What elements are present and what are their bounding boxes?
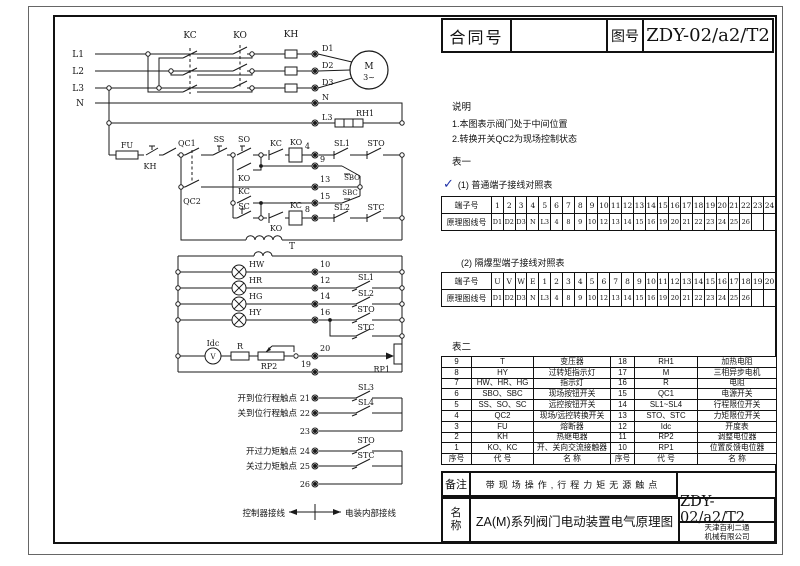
table-cell: T — [472, 357, 534, 368]
table-cell: 2 — [503, 197, 515, 214]
sto-contact-label: STO — [357, 436, 375, 445]
kc-contactor-label: KC — [183, 31, 196, 41]
table-cell: 10 — [645, 273, 657, 290]
table-cell: L3 — [539, 214, 551, 231]
terminal-16-label: 16 — [320, 308, 330, 317]
sbc-button-label: SBC — [342, 189, 357, 197]
table-cell — [752, 214, 764, 231]
close-torque-contact-label: 关过力矩触点 — [246, 461, 298, 472]
table-cell: 三相异步电机 — [698, 367, 777, 378]
drawing-sheet: L1 L2 L3 N KC KO KH D1 D2 D3 N L3 RH1 M … — [0, 0, 800, 566]
table-row: 端子号UVWE1234567891011121314151617181920 — [442, 273, 776, 290]
motor-label: M — [364, 62, 373, 72]
table1-sub2-label: (2) 隔爆型端子接线对照表 — [461, 256, 565, 269]
table-cell: 20 — [669, 214, 681, 231]
table-cell: 代 号 — [472, 454, 534, 465]
table-row: 1KO、KC开、关向交流接触器10RP1位置反馈电位器 — [442, 443, 777, 454]
exproof-terminal-table: 端子号UVWE1234567891011121314151617181920 原… — [441, 272, 776, 307]
contract-no-label: 合同号 — [441, 18, 512, 53]
name-label: 名 称 — [443, 499, 471, 541]
table-cell: 9 — [586, 197, 598, 214]
table-row: 原理图线号D1D2D3NL348910121314151619202122232… — [442, 214, 776, 231]
name-label-char1: 名 — [451, 507, 462, 520]
table-cell: RP1 — [635, 443, 698, 454]
table-cell: 4 — [527, 197, 539, 214]
table-cell: 1 — [539, 273, 551, 290]
terminal-25-label: 25 — [300, 462, 310, 471]
table-cell: 15 — [704, 273, 716, 290]
terminal-10-label: 10 — [320, 260, 330, 269]
table-cell: 11 — [611, 432, 635, 443]
terminal-26-label: 26 — [300, 480, 310, 489]
sto-torque-label: STO — [367, 139, 385, 148]
phase-l2-label: L2 — [72, 67, 84, 77]
terminal-9-label: 9 — [320, 155, 325, 164]
ss-label: SS — [214, 135, 225, 144]
table-cell: 23 — [704, 290, 716, 307]
table-cell: 15 — [611, 389, 635, 400]
row-header: 端子号 — [442, 197, 492, 214]
table-cell: 4 — [442, 410, 472, 421]
table-cell: 15 — [657, 197, 669, 214]
table-cell: 24 — [716, 214, 728, 231]
qc2-label: QC2 — [183, 197, 201, 206]
row-header: 原理图线号 — [442, 290, 492, 307]
note-item-1: 1.本图表示阀门处于中间位置 — [452, 117, 577, 132]
table-cell: 14 — [693, 273, 705, 290]
table-cell: D1 — [492, 290, 504, 307]
table-cell: 力矩限位开关 — [698, 410, 777, 421]
table-cell: W — [515, 273, 527, 290]
table-row: 6SBO、SBC现场按钮开关15QC1电源开关 — [442, 389, 777, 400]
table-cell: 21 — [681, 214, 693, 231]
ko-nc-label: KO — [270, 224, 283, 233]
table-cell: 电阻 — [698, 378, 777, 389]
table-cell: 8 — [562, 214, 574, 231]
table-cell: 24 — [764, 197, 776, 214]
normal-terminal-table: 端子号1234567891011121314151617181920212223… — [441, 196, 776, 231]
row-header: 原理图线号 — [442, 214, 492, 231]
table-cell: 位置反馈电位器 — [698, 443, 777, 454]
terminal-8-label: 8 — [305, 205, 310, 214]
table-cell: 18 — [693, 197, 705, 214]
name-block-right: ZDY-02/a2/T2 天津百利二通 机械有限公司 — [678, 499, 774, 541]
table-cell — [752, 290, 764, 307]
terminal-d2-label: D2 — [322, 61, 334, 70]
table-cell: 5 — [586, 273, 598, 290]
table-cell: 12 — [622, 197, 634, 214]
control-circuit — [109, 146, 404, 240]
table-cell: STO、STC — [635, 410, 698, 421]
table-cell: D3 — [515, 290, 527, 307]
motor-phase-label: 3~ — [363, 73, 375, 82]
notes-heading: 说明 — [452, 100, 577, 115]
phase-l1-label: L1 — [72, 50, 84, 60]
table-cell: 现场/远控转换开关 — [534, 410, 611, 421]
table-cell: 23 — [704, 214, 716, 231]
table-footer-row: 序号代 号名 称序号代 号名 称 — [442, 454, 777, 465]
table-cell: 9 — [633, 273, 645, 290]
company-name: 天津百利二通 机械有限公司 — [680, 523, 774, 541]
table-cell: 8 — [562, 290, 574, 307]
sl3-label: SL3 — [358, 383, 374, 392]
table-row: 7HW、HR、HG指示灯16R电阻 — [442, 378, 777, 389]
close-travel-contact-label: 关到位行程触点 — [237, 408, 297, 419]
table-cell: 11 — [657, 273, 669, 290]
table-cell: KO、KC — [472, 443, 534, 454]
drawing-no-small: ZDY-02/a2/T2 — [680, 499, 774, 523]
table-cell: 3 — [442, 421, 472, 432]
table-cell: 代 号 — [635, 454, 698, 465]
table-cell: 13 — [610, 290, 622, 307]
component-table: 9T变压器18RH1加热电阻 8HY过转矩指示灯17M三相异步电机 7HW、HR… — [441, 356, 777, 465]
table-cell: 5 — [539, 197, 551, 214]
table-cell: 26 — [740, 214, 752, 231]
table-cell: 4 — [574, 273, 586, 290]
table-cell: 12 — [598, 214, 610, 231]
terminal-23-label: 23 — [300, 427, 310, 436]
table-cell: D1 — [492, 214, 504, 231]
table-cell: 16 — [669, 197, 681, 214]
table-cell: 名 称 — [698, 454, 777, 465]
table-cell: 12 — [611, 421, 635, 432]
table-cell: 序号 — [611, 454, 635, 465]
table-cell: 16 — [645, 214, 657, 231]
terminal-21-label: 21 — [300, 394, 310, 403]
terminal-4-label: 4 — [305, 142, 310, 151]
table-cell: 10 — [586, 290, 598, 307]
table-cell: 26 — [740, 290, 752, 307]
table-cell: 9 — [574, 214, 586, 231]
ko-hold-label: KO — [238, 174, 251, 183]
table-cell: 6 — [551, 197, 563, 214]
ko-contactor-label: KO — [233, 31, 247, 41]
table-cell: U — [492, 273, 504, 290]
table-cell: 2 — [551, 273, 563, 290]
table-cell: 25 — [728, 290, 740, 307]
ko-coil-label: KO — [290, 138, 303, 147]
table-cell: 6 — [598, 273, 610, 290]
table-cell: 13 — [633, 197, 645, 214]
table-cell: SBO、SBC — [472, 389, 534, 400]
table-cell: RH1 — [635, 357, 698, 368]
table-cell: 18 — [611, 357, 635, 368]
stc-torque-label: STC — [368, 203, 385, 212]
table-cell: 序号 — [442, 454, 472, 465]
note-item-2: 2.转换开关QC2为现场控制状态 — [452, 132, 577, 147]
table-cell: D3 — [515, 214, 527, 231]
meter-glyph: V — [209, 353, 216, 361]
transformer-label: T — [289, 242, 295, 252]
table-cell: 19 — [657, 290, 669, 307]
company-line-1: 天津百利二通 — [705, 523, 750, 532]
terminal-12-label: 12 — [320, 276, 330, 285]
table-cell: E — [527, 273, 539, 290]
table-cell: 7 — [442, 378, 472, 389]
table-cell: QC1 — [635, 389, 698, 400]
table-cell — [764, 214, 776, 231]
table-cell: 19 — [752, 273, 764, 290]
table-cell: R — [635, 378, 698, 389]
kc-hold-label: KC — [238, 187, 250, 196]
table-cell: 过转矩指示灯 — [534, 367, 611, 378]
table-cell — [764, 290, 776, 307]
table-cell: 14 — [611, 400, 635, 411]
table-cell: Idc — [635, 421, 698, 432]
table-cell: 20 — [764, 273, 776, 290]
terminal-20-label: 20 — [320, 344, 330, 353]
terminal-l3-label: L3 — [322, 113, 332, 122]
table-cell: M — [635, 367, 698, 378]
table-cell: 18 — [740, 273, 752, 290]
title-block: 合同号 图号 ZDY-02/a2/T2 — [441, 18, 774, 53]
table-cell: 17 — [681, 197, 693, 214]
table-cell: V — [503, 273, 515, 290]
terminal-d1-label: D1 — [322, 44, 334, 53]
table-cell: 17 — [728, 273, 740, 290]
sto-ind-label: STO — [357, 305, 375, 314]
sl1-limit-label: SL1 — [334, 139, 350, 148]
table-cell: 7 — [562, 197, 574, 214]
so-label: SO — [238, 135, 250, 144]
table-row: 2KH热继电器11RP2调整电位器 — [442, 432, 777, 443]
legend-internal-label: 电装内部接线 — [345, 508, 397, 519]
table-cell: 12 — [598, 290, 610, 307]
terminal-14-label: 14 — [320, 292, 330, 301]
table-cell: 远控按钮开关 — [534, 400, 611, 411]
table-cell: D2 — [503, 290, 515, 307]
remark-label: 备注 — [441, 471, 471, 497]
table-cell: 22 — [740, 197, 752, 214]
table-cell: HW、HR、HG — [472, 378, 534, 389]
table-cell: 15 — [633, 290, 645, 307]
drawing-no-label: 图号 — [606, 18, 644, 53]
table-cell: 4 — [551, 214, 563, 231]
table-cell: N — [527, 214, 539, 231]
table-cell: 14 — [622, 214, 634, 231]
table-cell: 4 — [551, 290, 563, 307]
sl1-ind-label: SL1 — [358, 273, 374, 282]
drawing-no-value: ZDY-02/a2/T2 — [642, 18, 774, 53]
table1-sub1-label: (1) 普通端子接线对照表 — [458, 180, 553, 190]
table-cell: 13 — [611, 410, 635, 421]
sc-label: SC — [238, 202, 250, 211]
terminal-15-label: 15 — [320, 192, 330, 201]
terminal-13-label: 13 — [320, 175, 330, 184]
table-row: 3FU熔断器12Idc开度表 — [442, 421, 777, 432]
qc1-label: QC1 — [178, 139, 196, 148]
heater-rh1-label: RH1 — [356, 109, 374, 118]
table-cell: 行程限位开关 — [698, 400, 777, 411]
terminal-24-label: 24 — [300, 447, 310, 456]
table-cell: 开、关向交流接触器 — [534, 443, 611, 454]
table-cell: N — [527, 290, 539, 307]
name-label-char2: 称 — [451, 520, 462, 533]
table-cell: 16 — [716, 273, 728, 290]
stc-ind-label: STC — [358, 323, 375, 332]
table-cell: 17 — [611, 367, 635, 378]
table-cell: 14 — [645, 197, 657, 214]
table-cell: 10 — [598, 197, 610, 214]
sbo-button-label: SBO — [344, 174, 360, 182]
table-cell: 21 — [728, 197, 740, 214]
table-cell: 名 称 — [534, 454, 611, 465]
table-cell: 16 — [645, 290, 657, 307]
table-cell: 21 — [681, 290, 693, 307]
table-cell: 1 — [492, 197, 504, 214]
kc-nc-label: KC — [270, 139, 282, 148]
idc-meter-label: Idc — [207, 339, 220, 348]
table-cell: 10 — [586, 214, 598, 231]
drawing-title: ZA(M)系列阀门电动装置电气原理图 — [471, 499, 678, 541]
hw-lamp-label: HW — [249, 260, 265, 269]
table-cell: 1 — [442, 443, 472, 454]
table-cell: FU — [472, 421, 534, 432]
table-row: 4QC2现场/远控转换开关13STO、STC力矩限位开关 — [442, 410, 777, 421]
table-cell: 开度表 — [698, 421, 777, 432]
rp2-label: RP2 — [261, 362, 278, 371]
kc-coil-label: KC — [290, 201, 302, 210]
company-line-2: 机械有限公司 — [705, 532, 750, 541]
table-row: 端子号1234567891011121314151617181920212223… — [442, 197, 776, 214]
table-cell: 热继电器 — [534, 432, 611, 443]
fuse-label: FU — [121, 141, 134, 150]
table-cell: 2 — [442, 432, 472, 443]
table-cell: 9 — [442, 357, 472, 368]
name-block: 名 称 ZA(M)系列阀门电动装置电气原理图 ZDY-02/a2/T2 天津百利… — [441, 497, 776, 543]
table-cell: 19 — [657, 214, 669, 231]
table-cell: 22 — [693, 214, 705, 231]
table-cell: 指示灯 — [534, 378, 611, 389]
table-cell: 24 — [716, 290, 728, 307]
table-cell: HY — [472, 367, 534, 378]
rp1-label: RP1 — [374, 365, 391, 374]
table-cell: 变压器 — [534, 357, 611, 368]
sl4-label: SL4 — [358, 398, 374, 407]
table-cell: 16 — [611, 378, 635, 389]
table1-heading: 表一 — [452, 154, 471, 168]
phase-l3-label: L3 — [72, 84, 84, 94]
sl2-ind-label: SL2 — [358, 289, 374, 298]
table-cell: 25 — [728, 214, 740, 231]
table-row: 原理图线号D1D2D3NL348910121314151619202122232… — [442, 290, 776, 307]
table2-heading: 表二 — [452, 339, 471, 353]
resistor-label: R — [237, 342, 244, 351]
table-cell: SL1~SL4 — [635, 400, 698, 411]
legend-controller-label: 控制器接线 — [242, 508, 285, 519]
table-cell: 8 — [622, 273, 634, 290]
table-cell: 熔断器 — [534, 421, 611, 432]
hg-lamp-label: HG — [249, 292, 262, 301]
table-cell: 13 — [610, 214, 622, 231]
table-cell: 3 — [562, 273, 574, 290]
table-cell: 6 — [442, 389, 472, 400]
table-cell: 23 — [752, 197, 764, 214]
remark-text: 带现场操作,行程力矩无源触点 — [471, 471, 678, 497]
table-cell: SS、SO、SC — [472, 400, 534, 411]
table-cell: 现场按钮开关 — [534, 389, 611, 400]
table-cell: 8 — [442, 367, 472, 378]
hr-lamp-label: HR — [249, 276, 263, 285]
open-travel-contact-label: 开到位行程触点 — [237, 393, 297, 404]
table-cell: D2 — [503, 214, 515, 231]
table-cell: 10 — [611, 443, 635, 454]
terminal-19-label: 19 — [301, 360, 311, 369]
table-row: 8HY过转矩指示灯17M三相异步电机 — [442, 367, 777, 378]
table-cell: 11 — [610, 197, 622, 214]
terminal-d3-label: D3 — [322, 78, 334, 87]
terminal-n-label: N — [322, 93, 329, 102]
table-cell: KH — [472, 432, 534, 443]
table-cell: 加热电阻 — [698, 357, 777, 368]
open-torque-contact-label: 开过力矩触点 — [246, 446, 298, 457]
sl2-limit-label: SL2 — [334, 203, 350, 212]
neutral-label: N — [76, 99, 84, 109]
notes-block: 说明 1.本图表示阀门处于中间位置 2.转换开关QC2为现场控制状态 — [452, 100, 577, 147]
terminal-22-label: 22 — [300, 409, 310, 418]
kh-relay-label: KH — [284, 30, 299, 40]
table-cell: 9 — [574, 290, 586, 307]
table-cell: 20 — [669, 290, 681, 307]
table-cell: 20 — [716, 197, 728, 214]
table-cell: 13 — [681, 273, 693, 290]
check-mark-icon: ✓ — [443, 177, 454, 192]
table-cell: RP2 — [635, 432, 698, 443]
hy-lamp-label: HY — [249, 308, 262, 317]
row-header: 端子号 — [442, 273, 492, 290]
table-row: 5SS、SO、SC远控按钮开关14SL1~SL4行程限位开关 — [442, 400, 777, 411]
table-cell: 电源开关 — [698, 389, 777, 400]
kh-contact-label: KH — [144, 162, 157, 171]
table-cell: 15 — [633, 214, 645, 231]
table-cell: 8 — [574, 197, 586, 214]
table-cell: 5 — [442, 400, 472, 411]
table-row: 9T变压器18RH1加热电阻 — [442, 357, 777, 368]
table-cell: 调整电位器 — [698, 432, 777, 443]
table-cell: QC2 — [472, 410, 534, 421]
table-cell: 3 — [515, 197, 527, 214]
contract-no-value — [510, 18, 608, 53]
table-cell: 22 — [693, 290, 705, 307]
table1-sub1-line: ✓(1) 普通端子接线对照表 — [443, 177, 552, 192]
table-cell: 7 — [610, 273, 622, 290]
stc-contact-label: STC — [358, 451, 375, 460]
table-cell: 19 — [704, 197, 716, 214]
table-cell: 14 — [622, 290, 634, 307]
table-cell: L3 — [539, 290, 551, 307]
table-cell: 12 — [669, 273, 681, 290]
